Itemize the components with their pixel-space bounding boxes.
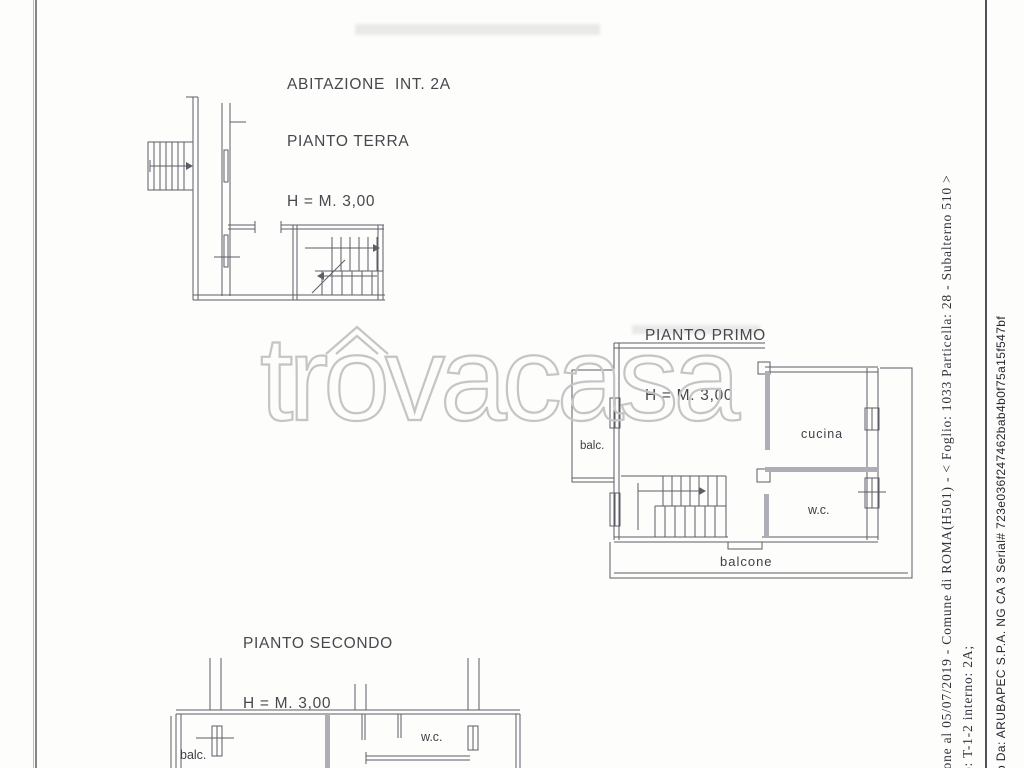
scan-fold-line-dark (35, 0, 37, 768)
floor-plan-terra-drawing (140, 88, 400, 312)
window-symbol (224, 235, 228, 267)
room-label-balcony: balc. (180, 748, 206, 762)
top-wall (176, 710, 520, 714)
cadastral-margin-note: ione al 05/07/2019 - Comune di ROMA(H501… (936, 74, 978, 768)
interior-staircase (305, 237, 383, 295)
right-wall (516, 714, 520, 768)
stair-direction-arrow-icon (699, 487, 706, 495)
room-label-wc: w.c. (420, 730, 443, 744)
scan-fold-line (33, 0, 34, 768)
left-exterior-wall (186, 97, 198, 300)
interior-staircase (621, 476, 726, 537)
stair-direction-arrow-icon (317, 272, 324, 280)
room-label-balcone: balcone (720, 554, 773, 569)
interior-wall-stubs (362, 714, 401, 740)
door-threshold-symbol (728, 542, 762, 549)
signature-margin-note: o Da: ARUBAPEC S.P.A. NG CA 3 Serial# 72… (994, 302, 1008, 768)
scanned-floorplan-page: ABITAZIONE INT. 2A PIANTO TERRA H = M. 3… (0, 0, 1024, 768)
scan-noise (355, 24, 600, 35)
wall-stubs (210, 658, 479, 710)
corridor-wall (214, 103, 246, 296)
unit-text: o: T-1-2 interno: 2A; (957, 74, 978, 768)
room-label-kitchen: cucina (801, 427, 843, 441)
registration-text: ione al 05/07/2019 - Comune di ROMA(H501… (936, 74, 957, 768)
floor-plan-secondo-drawing: balc. w.c. (168, 652, 528, 768)
interior-wall (325, 714, 330, 768)
exterior-staircase (148, 142, 193, 190)
watermark-text: trovacasa (260, 318, 741, 446)
margin-separator-line (985, 0, 987, 768)
trovacasa-watermark: trovacasa (254, 318, 784, 450)
stair-direction-arrow-icon (186, 162, 193, 170)
window-symbol (224, 150, 228, 182)
floor-label: PIANTO SECONDO (243, 634, 393, 653)
wc-wall (366, 752, 470, 764)
room-label-wc: w.c. (807, 503, 830, 517)
